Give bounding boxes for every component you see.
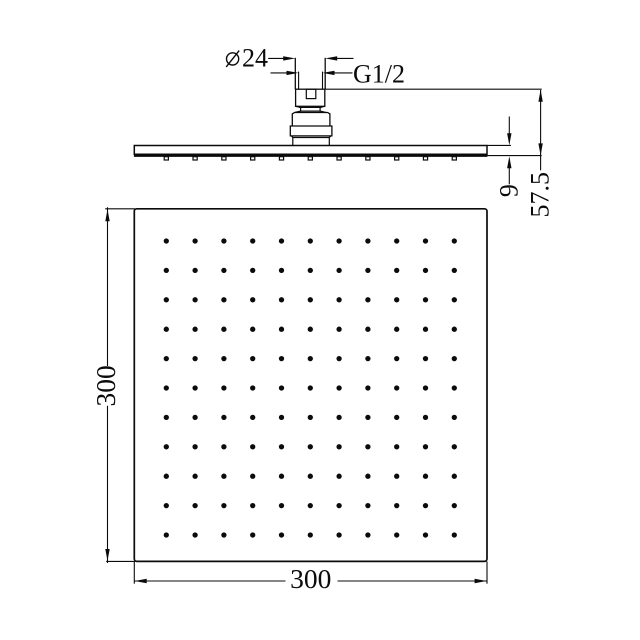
svg-text:300: 300 xyxy=(90,365,121,406)
svg-text:24: 24 xyxy=(242,44,268,73)
svg-text:9: 9 xyxy=(495,184,524,197)
svg-text:300: 300 xyxy=(290,563,331,594)
svg-text:G1/2: G1/2 xyxy=(353,59,405,88)
svg-text:57.5: 57.5 xyxy=(526,172,555,218)
